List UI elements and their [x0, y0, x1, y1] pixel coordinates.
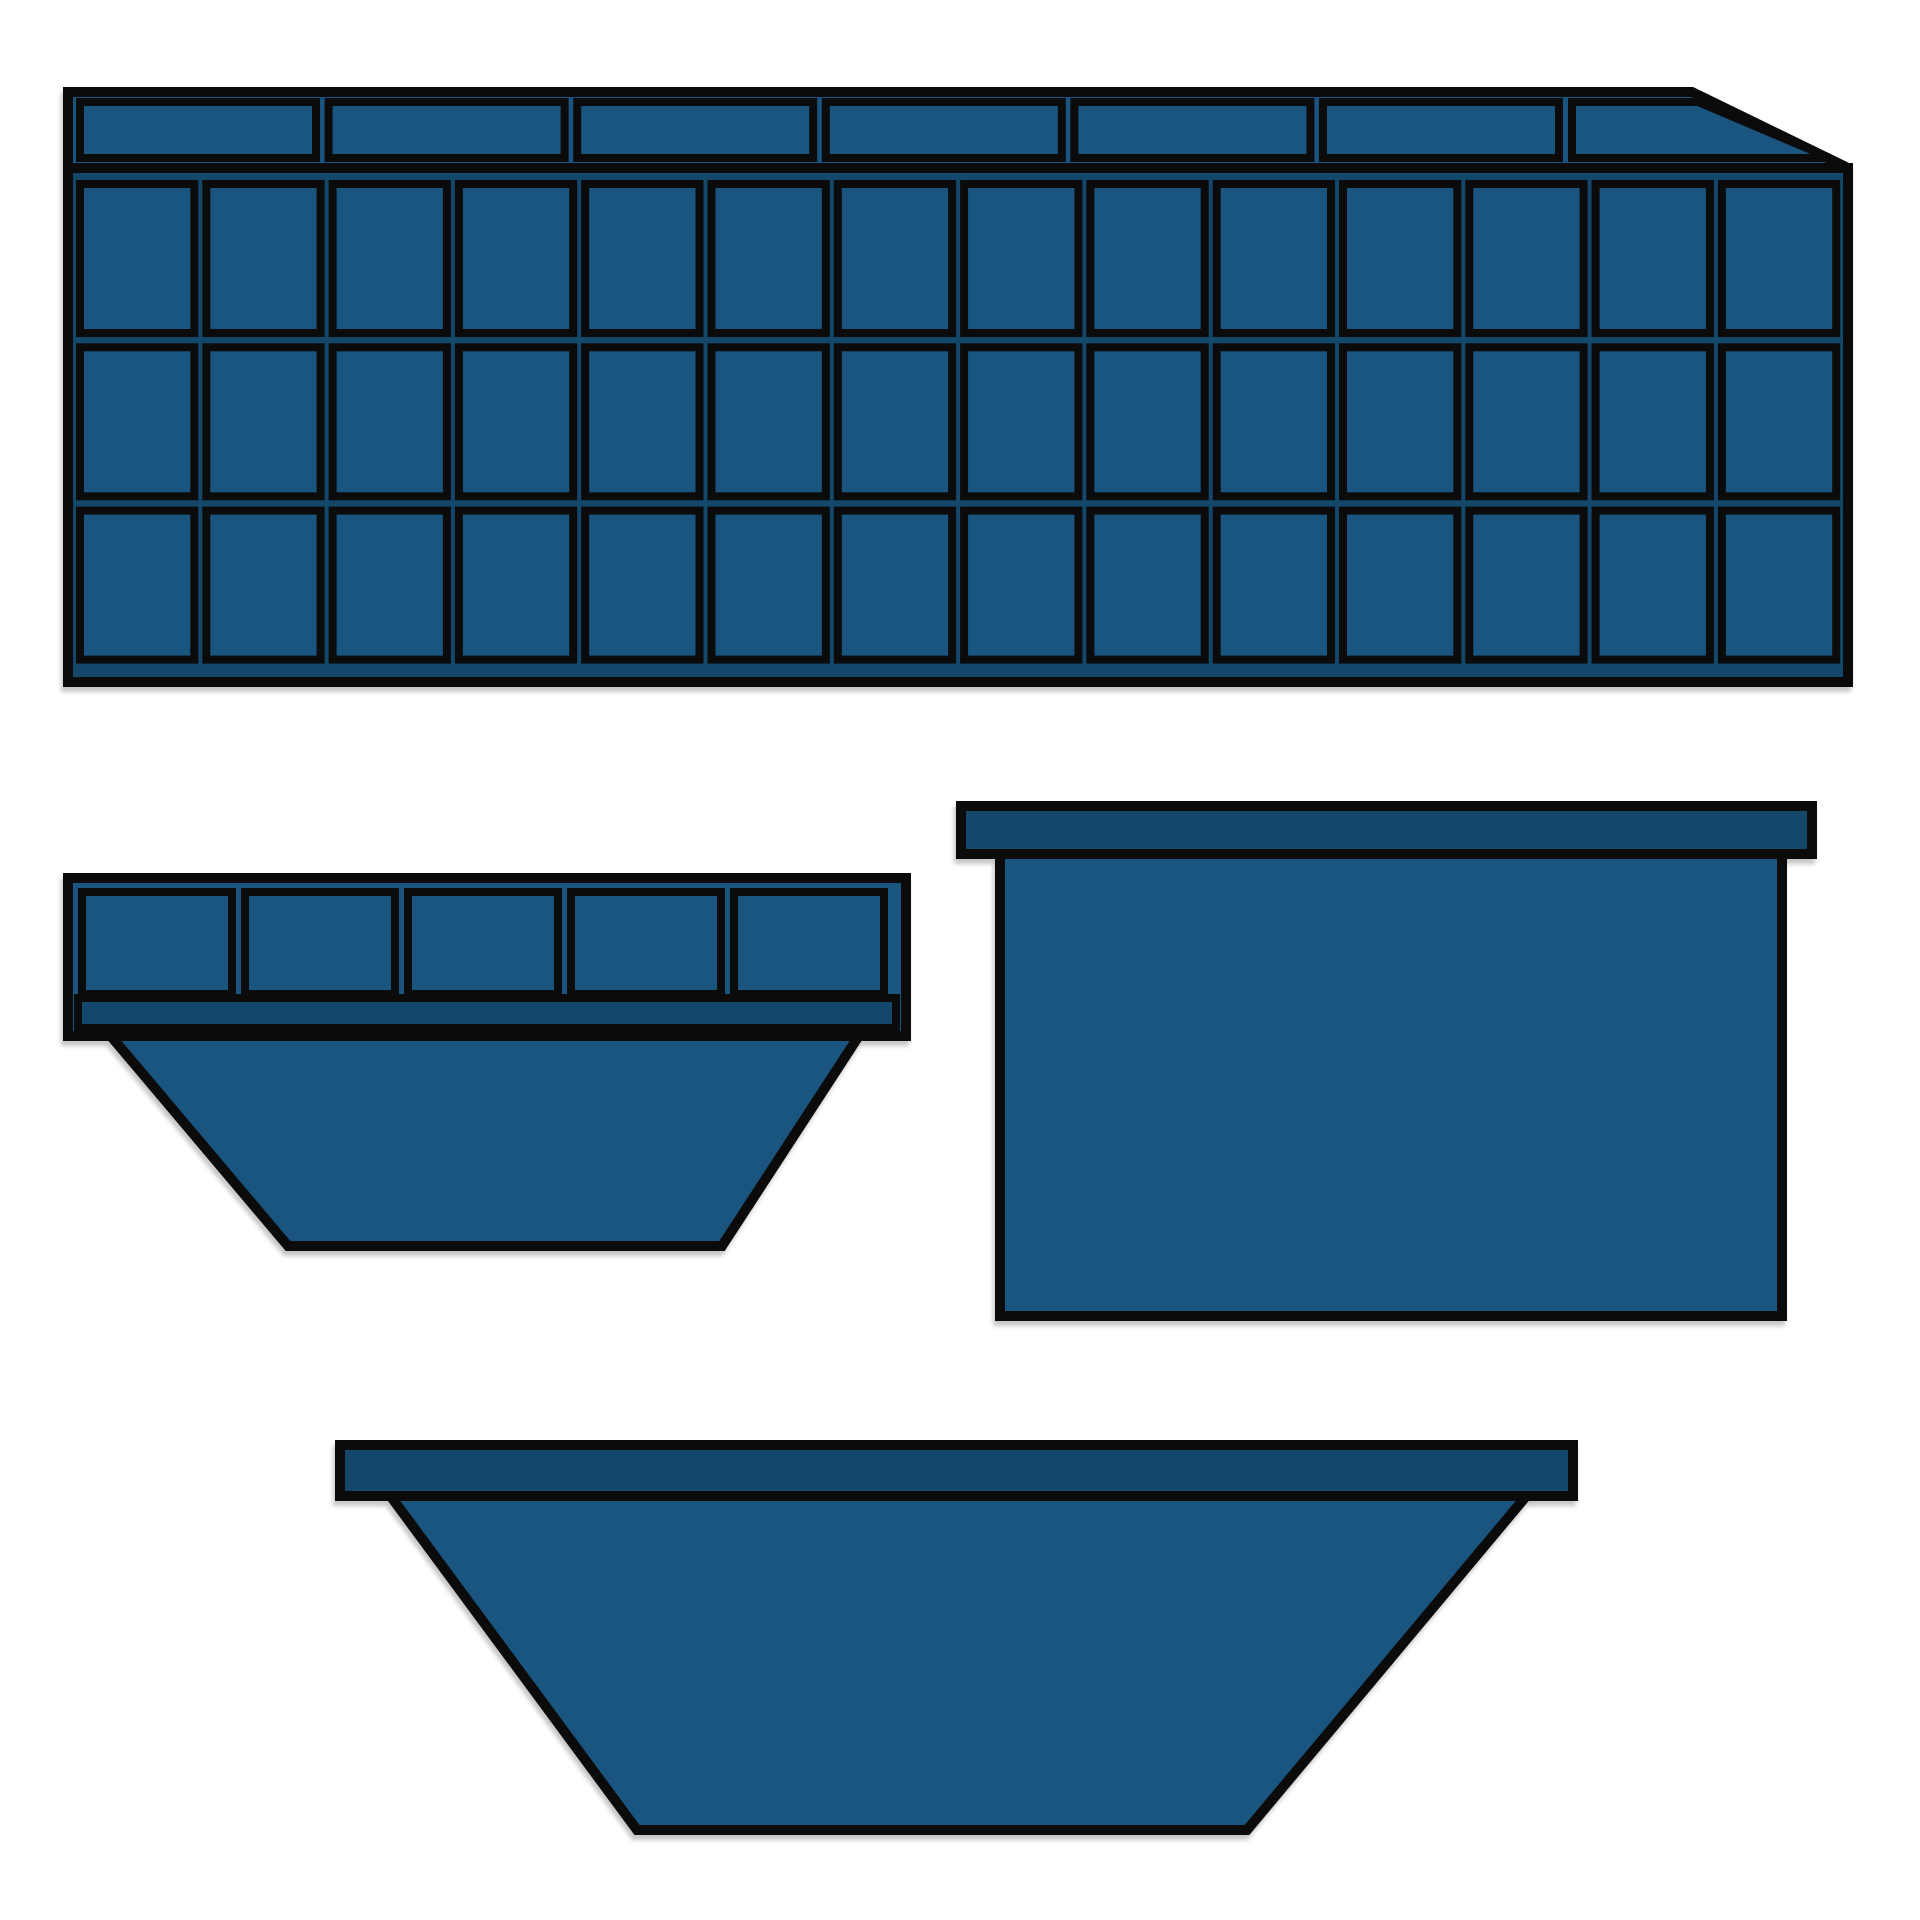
container-panel: [964, 511, 1078, 660]
container-panel: [206, 347, 320, 496]
container-panel: [80, 184, 194, 333]
container-panel: [1722, 511, 1836, 660]
box-container-illustration: [961, 806, 1812, 1316]
rail-segment: [329, 102, 565, 158]
container-panel: [459, 511, 573, 660]
container-panel: [1596, 347, 1710, 496]
waste-container-illustrations: [0, 0, 1920, 1920]
container-panel: [1217, 511, 1331, 660]
rail-segment-chamfered: [1572, 102, 1830, 158]
container-panel: [80, 511, 194, 660]
rail-segment: [577, 102, 813, 158]
container-panel: [1343, 347, 1457, 496]
container-panel: [333, 511, 447, 660]
container-panel: [80, 347, 194, 496]
container-panel: [1596, 184, 1710, 333]
container-panel: [1343, 184, 1457, 333]
box-body: [1000, 852, 1782, 1316]
container-panel: [838, 347, 952, 496]
rail-segment: [1323, 102, 1559, 158]
small-skip-illustration: [68, 878, 906, 1246]
box-lip: [961, 806, 1812, 854]
container-panel: [585, 347, 699, 496]
container-panel: [838, 184, 952, 333]
container-panel: [712, 184, 826, 333]
container-panel: [1469, 184, 1583, 333]
container-panel: [964, 184, 1078, 333]
skip-frame-panel: [245, 892, 395, 994]
container-panel: [1217, 347, 1331, 496]
rail-segment: [1074, 102, 1310, 158]
container-panel: [1090, 184, 1204, 333]
container-panel: [1469, 347, 1583, 496]
container-panel: [333, 184, 447, 333]
container-panel: [1217, 184, 1331, 333]
container-panel: [712, 347, 826, 496]
skip-frame-band: [78, 998, 896, 1028]
panelled-container-illustration: [68, 92, 1848, 682]
skip-lip: [340, 1445, 1573, 1496]
large-skip-illustration: [340, 1445, 1573, 1830]
container-panel: [1596, 511, 1710, 660]
rail-segment: [80, 102, 316, 158]
container-panel: [206, 511, 320, 660]
container-panel: [333, 347, 447, 496]
container-panel: [838, 511, 952, 660]
illustration-stage: [0, 0, 1920, 1920]
container-panel: [1722, 347, 1836, 496]
rail-segment: [826, 102, 1062, 158]
container-panel: [1722, 184, 1836, 333]
container-panel: [964, 347, 1078, 496]
container-panel: [712, 511, 826, 660]
skip-tub: [389, 1494, 1528, 1830]
container-panel: [1090, 511, 1204, 660]
skip-frame-panel: [734, 892, 884, 994]
container-panel: [206, 184, 320, 333]
container-panel: [1343, 511, 1457, 660]
skip-tub: [104, 1028, 864, 1246]
container-panel: [1090, 347, 1204, 496]
skip-frame-panel: [82, 892, 232, 994]
skip-frame-panel: [571, 892, 721, 994]
container-panel: [459, 347, 573, 496]
container-panel: [585, 511, 699, 660]
container-panel: [459, 184, 573, 333]
container-panel: [585, 184, 699, 333]
container-panel: [1469, 511, 1583, 660]
skip-frame-panel: [408, 892, 558, 994]
